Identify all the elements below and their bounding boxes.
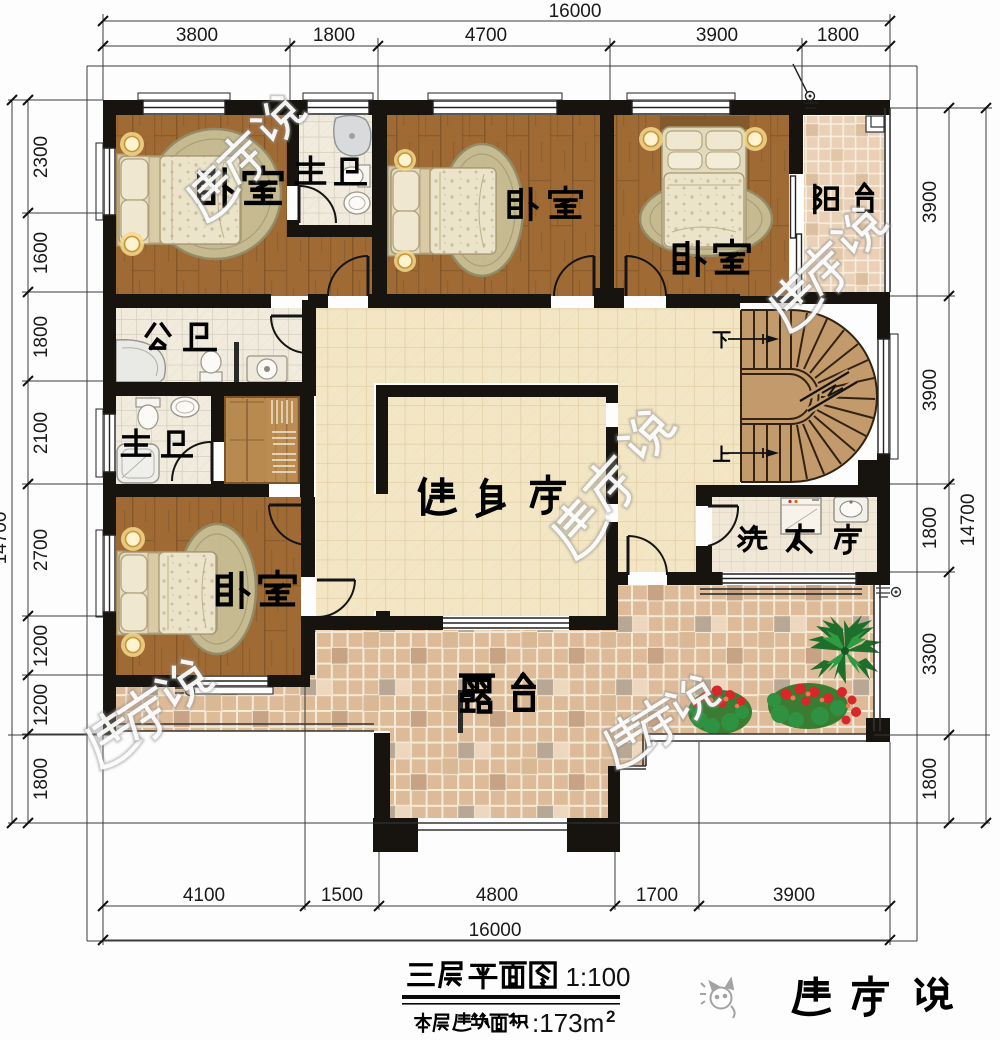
- svg-text:3900: 3900: [920, 369, 941, 411]
- svg-text:3900: 3900: [696, 25, 738, 46]
- svg-text:1800: 1800: [313, 25, 355, 46]
- svg-text:16000: 16000: [469, 920, 522, 941]
- svg-text:1600: 1600: [31, 232, 52, 274]
- svg-text:1:100: 1:100: [565, 962, 630, 992]
- svg-text:14700: 14700: [958, 494, 979, 547]
- svg-text:1700: 1700: [636, 885, 678, 906]
- svg-text:1800: 1800: [817, 25, 859, 46]
- svg-text:1200: 1200: [31, 625, 52, 667]
- svg-text:2100: 2100: [31, 412, 52, 454]
- svg-text::173m: :173m: [532, 1008, 604, 1038]
- svg-text:1500: 1500: [321, 885, 363, 906]
- svg-text:1800: 1800: [920, 507, 941, 549]
- svg-text:14700: 14700: [0, 512, 11, 565]
- svg-text:3300: 3300: [920, 633, 941, 675]
- svg-text:1200: 1200: [31, 684, 52, 726]
- svg-text:4100: 4100: [183, 885, 225, 906]
- svg-text:2700: 2700: [31, 529, 52, 571]
- svg-text:3800: 3800: [176, 25, 218, 46]
- svg-text:4800: 4800: [476, 885, 518, 906]
- svg-text:1800: 1800: [920, 758, 941, 800]
- svg-text:3900: 3900: [773, 885, 815, 906]
- svg-text:1800: 1800: [31, 316, 52, 358]
- svg-text:4700: 4700: [465, 25, 507, 46]
- svg-text:1800: 1800: [31, 758, 52, 800]
- svg-text:16000: 16000: [549, 1, 602, 22]
- svg-text:2300: 2300: [31, 136, 52, 178]
- svg-text:2: 2: [606, 1007, 615, 1026]
- svg-text:3900: 3900: [920, 181, 941, 223]
